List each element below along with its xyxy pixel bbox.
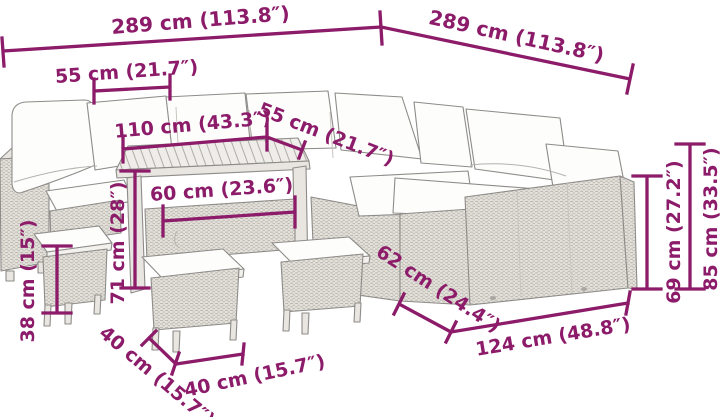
dim-overall-depth-right: 289 cm (113.8″) [381, 5, 633, 93]
stool-leg [283, 310, 290, 331]
dimension-line [176, 344, 244, 364]
dimension-label: 69 cm (27.2″) [663, 160, 685, 303]
sofa-right-back-panel [465, 176, 628, 305]
stool-left [34, 226, 112, 326]
furniture-dimension-diagram: 289 cm (113.8″) 289 cm (113.8″) 55 cm (2… [0, 0, 720, 417]
dimension-label: 85 cm (33.5″) [700, 147, 720, 290]
dimension-label: 55 cm (21.7″) [54, 56, 199, 88]
stool-body [281, 254, 363, 312]
stool-leg [44, 305, 51, 326]
stool-leg [94, 295, 101, 314]
dimension-line [633, 176, 661, 289]
sofa-left-leg [6, 271, 14, 281]
stool-leg [354, 303, 361, 322]
dimension-label: 38 cm (15″) [17, 219, 39, 342]
stool-center [272, 237, 370, 334]
dim-armrest-height: 69 cm (27.2″) [633, 160, 685, 303]
stool-body [151, 268, 239, 330]
back-pillow [414, 102, 472, 167]
stool-leg [302, 313, 309, 334]
stool-leg [230, 320, 237, 340]
dim-stool-width: 40 cm (15.7″) [176, 344, 327, 402]
stool-leg [173, 331, 180, 352]
panel-foot [490, 296, 496, 300]
dimension-label: 289 cm (113.8″) [427, 5, 607, 67]
diagram-canvas: 289 cm (113.8″) 289 cm (113.8″) 55 cm (2… [0, 0, 720, 417]
panel-foot [581, 287, 587, 291]
dimension-label: 71 cm (28″) [107, 181, 129, 304]
stool-center-left [142, 249, 244, 352]
